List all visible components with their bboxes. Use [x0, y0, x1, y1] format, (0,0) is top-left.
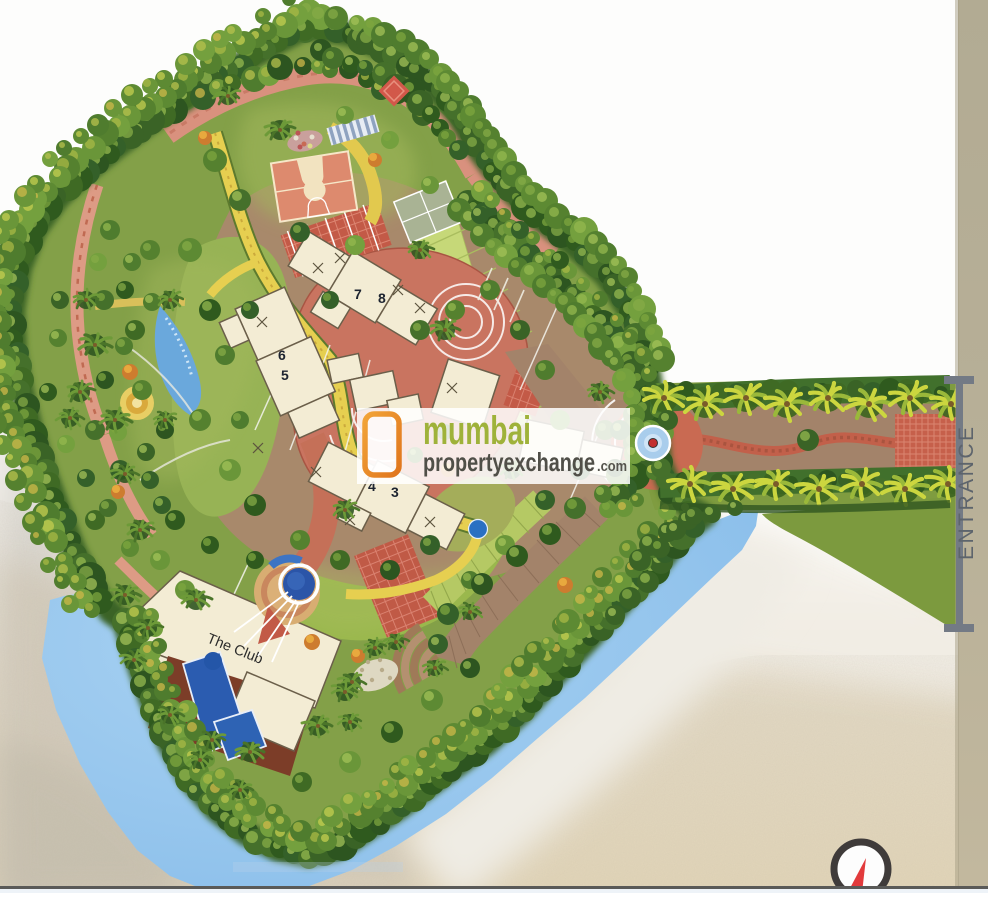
svg-text:.com: .com [597, 458, 627, 475]
svg-text:7: 7 [354, 286, 362, 302]
svg-text:6: 6 [278, 347, 286, 363]
svg-text:5: 5 [281, 367, 289, 383]
svg-text:3: 3 [391, 484, 399, 500]
svg-text:ENTRANCE: ENTRANCE [955, 424, 978, 560]
svg-text:propertyexchange: propertyexchange [423, 447, 595, 477]
svg-text:8: 8 [378, 290, 386, 306]
